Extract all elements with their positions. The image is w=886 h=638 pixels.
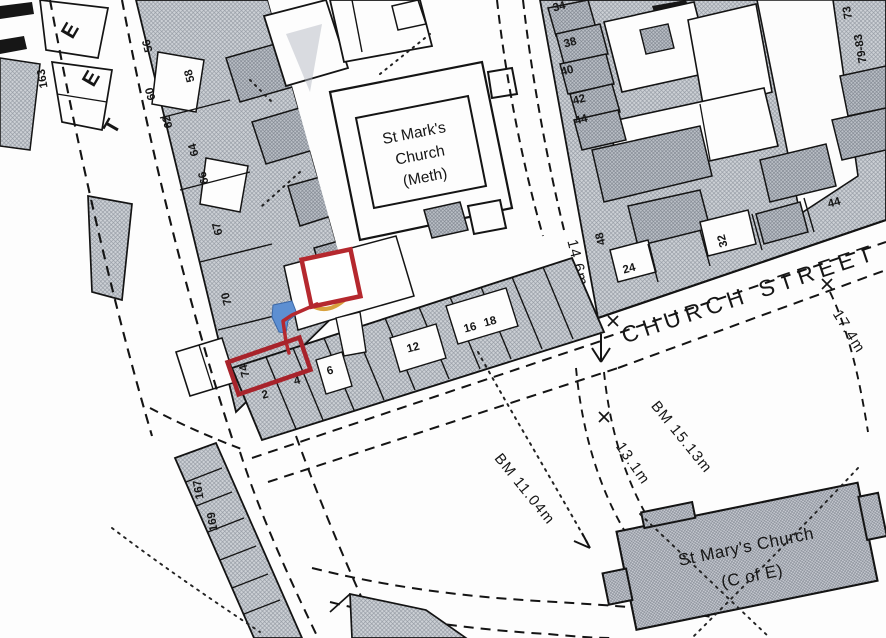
- building-solid: [0, 2, 34, 19]
- house-number: 73: [841, 5, 855, 20]
- house-number: 163: [35, 68, 50, 89]
- survey-cross: [608, 316, 618, 326]
- building-solid: [0, 36, 27, 54]
- property-boundary-red: [302, 249, 361, 306]
- building: [640, 24, 674, 54]
- boundary-dotted: [478, 352, 588, 544]
- courtyard: [152, 52, 204, 112]
- spot-height-label: 13.1m: [612, 439, 653, 488]
- street-name-letter: T: [99, 115, 125, 138]
- survey-cross: [599, 412, 609, 422]
- benchmark-label: BM 11.04m: [491, 450, 559, 528]
- courtyard: [200, 158, 248, 212]
- st-marys-building: [617, 483, 878, 630]
- road-width-label: 17.4m: [829, 307, 869, 356]
- benchmark-label: BM 15.13m: [647, 398, 715, 477]
- st-marks-annex: [468, 200, 506, 234]
- os-town-plan-map: E E T 163 56 58 60 62 64 66 67 70 St Mar…: [0, 0, 886, 638]
- st-marks-annex: [488, 68, 517, 98]
- benchmark-arrow-icon: [592, 334, 610, 362]
- map-viewport: E E T 163 56 58 60 62 64 66 67 70 St Mar…: [0, 0, 886, 638]
- building: [350, 594, 466, 638]
- building: [0, 58, 40, 150]
- building-block: [175, 443, 302, 638]
- st-marys-porch: [603, 569, 633, 605]
- building: [88, 196, 132, 300]
